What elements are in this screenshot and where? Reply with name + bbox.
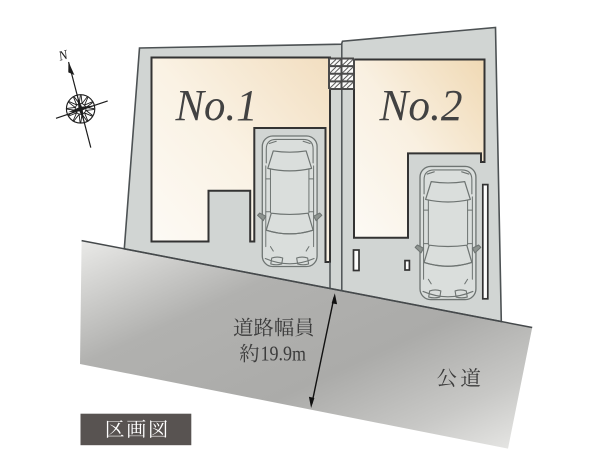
svg-text:No.2: No.2 — [379, 81, 463, 130]
svg-text:19.9m: 19.9m — [261, 342, 307, 366]
svg-text:No.1: No.1 — [175, 81, 258, 130]
